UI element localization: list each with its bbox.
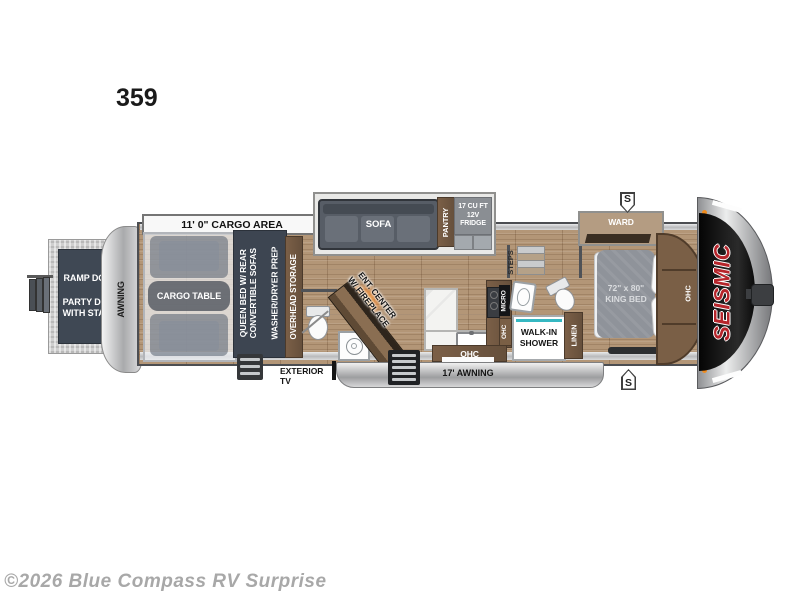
bedroom-ohc-label: OHC bbox=[684, 285, 693, 301]
walk-in-shower-label-2: SHOWER bbox=[520, 338, 558, 348]
steps-label: STEPS bbox=[506, 250, 515, 275]
entry-steps bbox=[388, 350, 420, 385]
cargo-table-label: CARGO TABLE bbox=[157, 291, 221, 301]
overhead-storage: OVERHEAD STORAGE bbox=[285, 236, 303, 358]
linen-label: LINEN bbox=[569, 324, 578, 346]
fridge-label-2: 12V FRIDGE bbox=[460, 212, 486, 228]
queen-bed-label-2: CONVERTIBLE SOFAS bbox=[248, 248, 258, 338]
brand-logo: SEISMIC bbox=[710, 243, 736, 340]
bedroom-ohc-label-wrap: OHC bbox=[681, 268, 695, 318]
garage-sofa-top bbox=[150, 236, 228, 278]
garage-sofa-bottom bbox=[150, 314, 228, 356]
washer-dryer-label: WASHER/DRYER PREP bbox=[269, 247, 279, 340]
overhead-storage-label: OVERHEAD STORAGE bbox=[289, 254, 299, 339]
micro-label: MICRO bbox=[501, 290, 509, 311]
bath-bedroom-wall bbox=[579, 245, 582, 278]
queen-bed-label-wrap: QUEEN BED W/ REAR CONVERTIBLE SOFAS bbox=[231, 230, 265, 356]
slide-badge-letter: S bbox=[620, 193, 635, 205]
slide-badge-top: S bbox=[620, 192, 635, 213]
brand-logo-wrap: SEISMIC bbox=[697, 222, 749, 362]
walk-in-shower-label-1: WALK-IN bbox=[521, 327, 557, 337]
pantry: PANTRY bbox=[437, 197, 455, 247]
floorplan-page: 359 RAMP DOOR PARTY DECK WITH STAIRS AWN… bbox=[0, 0, 800, 600]
rear-awning: AWNING bbox=[101, 226, 142, 373]
sofa-label: SOFA bbox=[366, 219, 391, 230]
ward-slideout: WARD bbox=[578, 211, 664, 246]
deck-stairs bbox=[27, 275, 53, 311]
fridge-drawer bbox=[454, 235, 473, 250]
steps-label-wrap: STEPS bbox=[503, 244, 517, 280]
fridge-drawer bbox=[473, 235, 492, 250]
ward-label: WARD bbox=[608, 217, 634, 227]
rear-awning-label: AWNING bbox=[116, 281, 127, 317]
front-awning-label: 17' AWNING bbox=[442, 368, 493, 378]
bed-bench bbox=[608, 347, 660, 354]
ward-cabinet bbox=[585, 234, 651, 243]
bathroom-vanity-sink bbox=[509, 280, 537, 313]
cargo-table: CARGO TABLE bbox=[148, 281, 230, 311]
washer-dryer-label-wrap: WASHER/DRYER PREP bbox=[263, 230, 285, 356]
walk-in-shower: WALK-IN SHOWER bbox=[512, 315, 566, 361]
pantry-label: PANTRY bbox=[442, 207, 451, 236]
ohc-kitchen-vertical: OHC bbox=[499, 318, 512, 346]
hitch-pin bbox=[751, 284, 774, 306]
bedroom-steps bbox=[517, 246, 545, 277]
linen-cabinet: LINEN bbox=[564, 312, 583, 359]
king-bed-label-1: 72" x 80" bbox=[608, 283, 644, 293]
sofa: SOFA bbox=[318, 199, 439, 250]
microwave: MICRO bbox=[499, 285, 510, 316]
slide-badge-bottom: S bbox=[621, 369, 636, 390]
cargo-area-label: 11' 0" CARGO AREA bbox=[181, 219, 283, 231]
fridge-label-1: 17 CU FT bbox=[458, 203, 488, 210]
half-bath-wall bbox=[301, 289, 337, 292]
exterior-tv-label: EXTERIOR TV bbox=[280, 366, 336, 377]
cargo-steps bbox=[237, 354, 263, 380]
model-number: 359 bbox=[116, 84, 158, 113]
fridge: 17 CU FT 12V FRIDGE bbox=[454, 197, 492, 235]
copyright-watermark: ©2026 Blue Compass RV Surprise bbox=[4, 571, 327, 593]
queen-bed-label-1: QUEEN BED W/ REAR bbox=[238, 249, 248, 337]
king-bed: 72" x 80" KING BED bbox=[597, 250, 655, 338]
king-bed-label-2: KING BED bbox=[605, 294, 647, 304]
ohc-kitchen-vertical-label: OHC bbox=[502, 325, 510, 339]
slide-badge-letter: S bbox=[621, 377, 636, 389]
